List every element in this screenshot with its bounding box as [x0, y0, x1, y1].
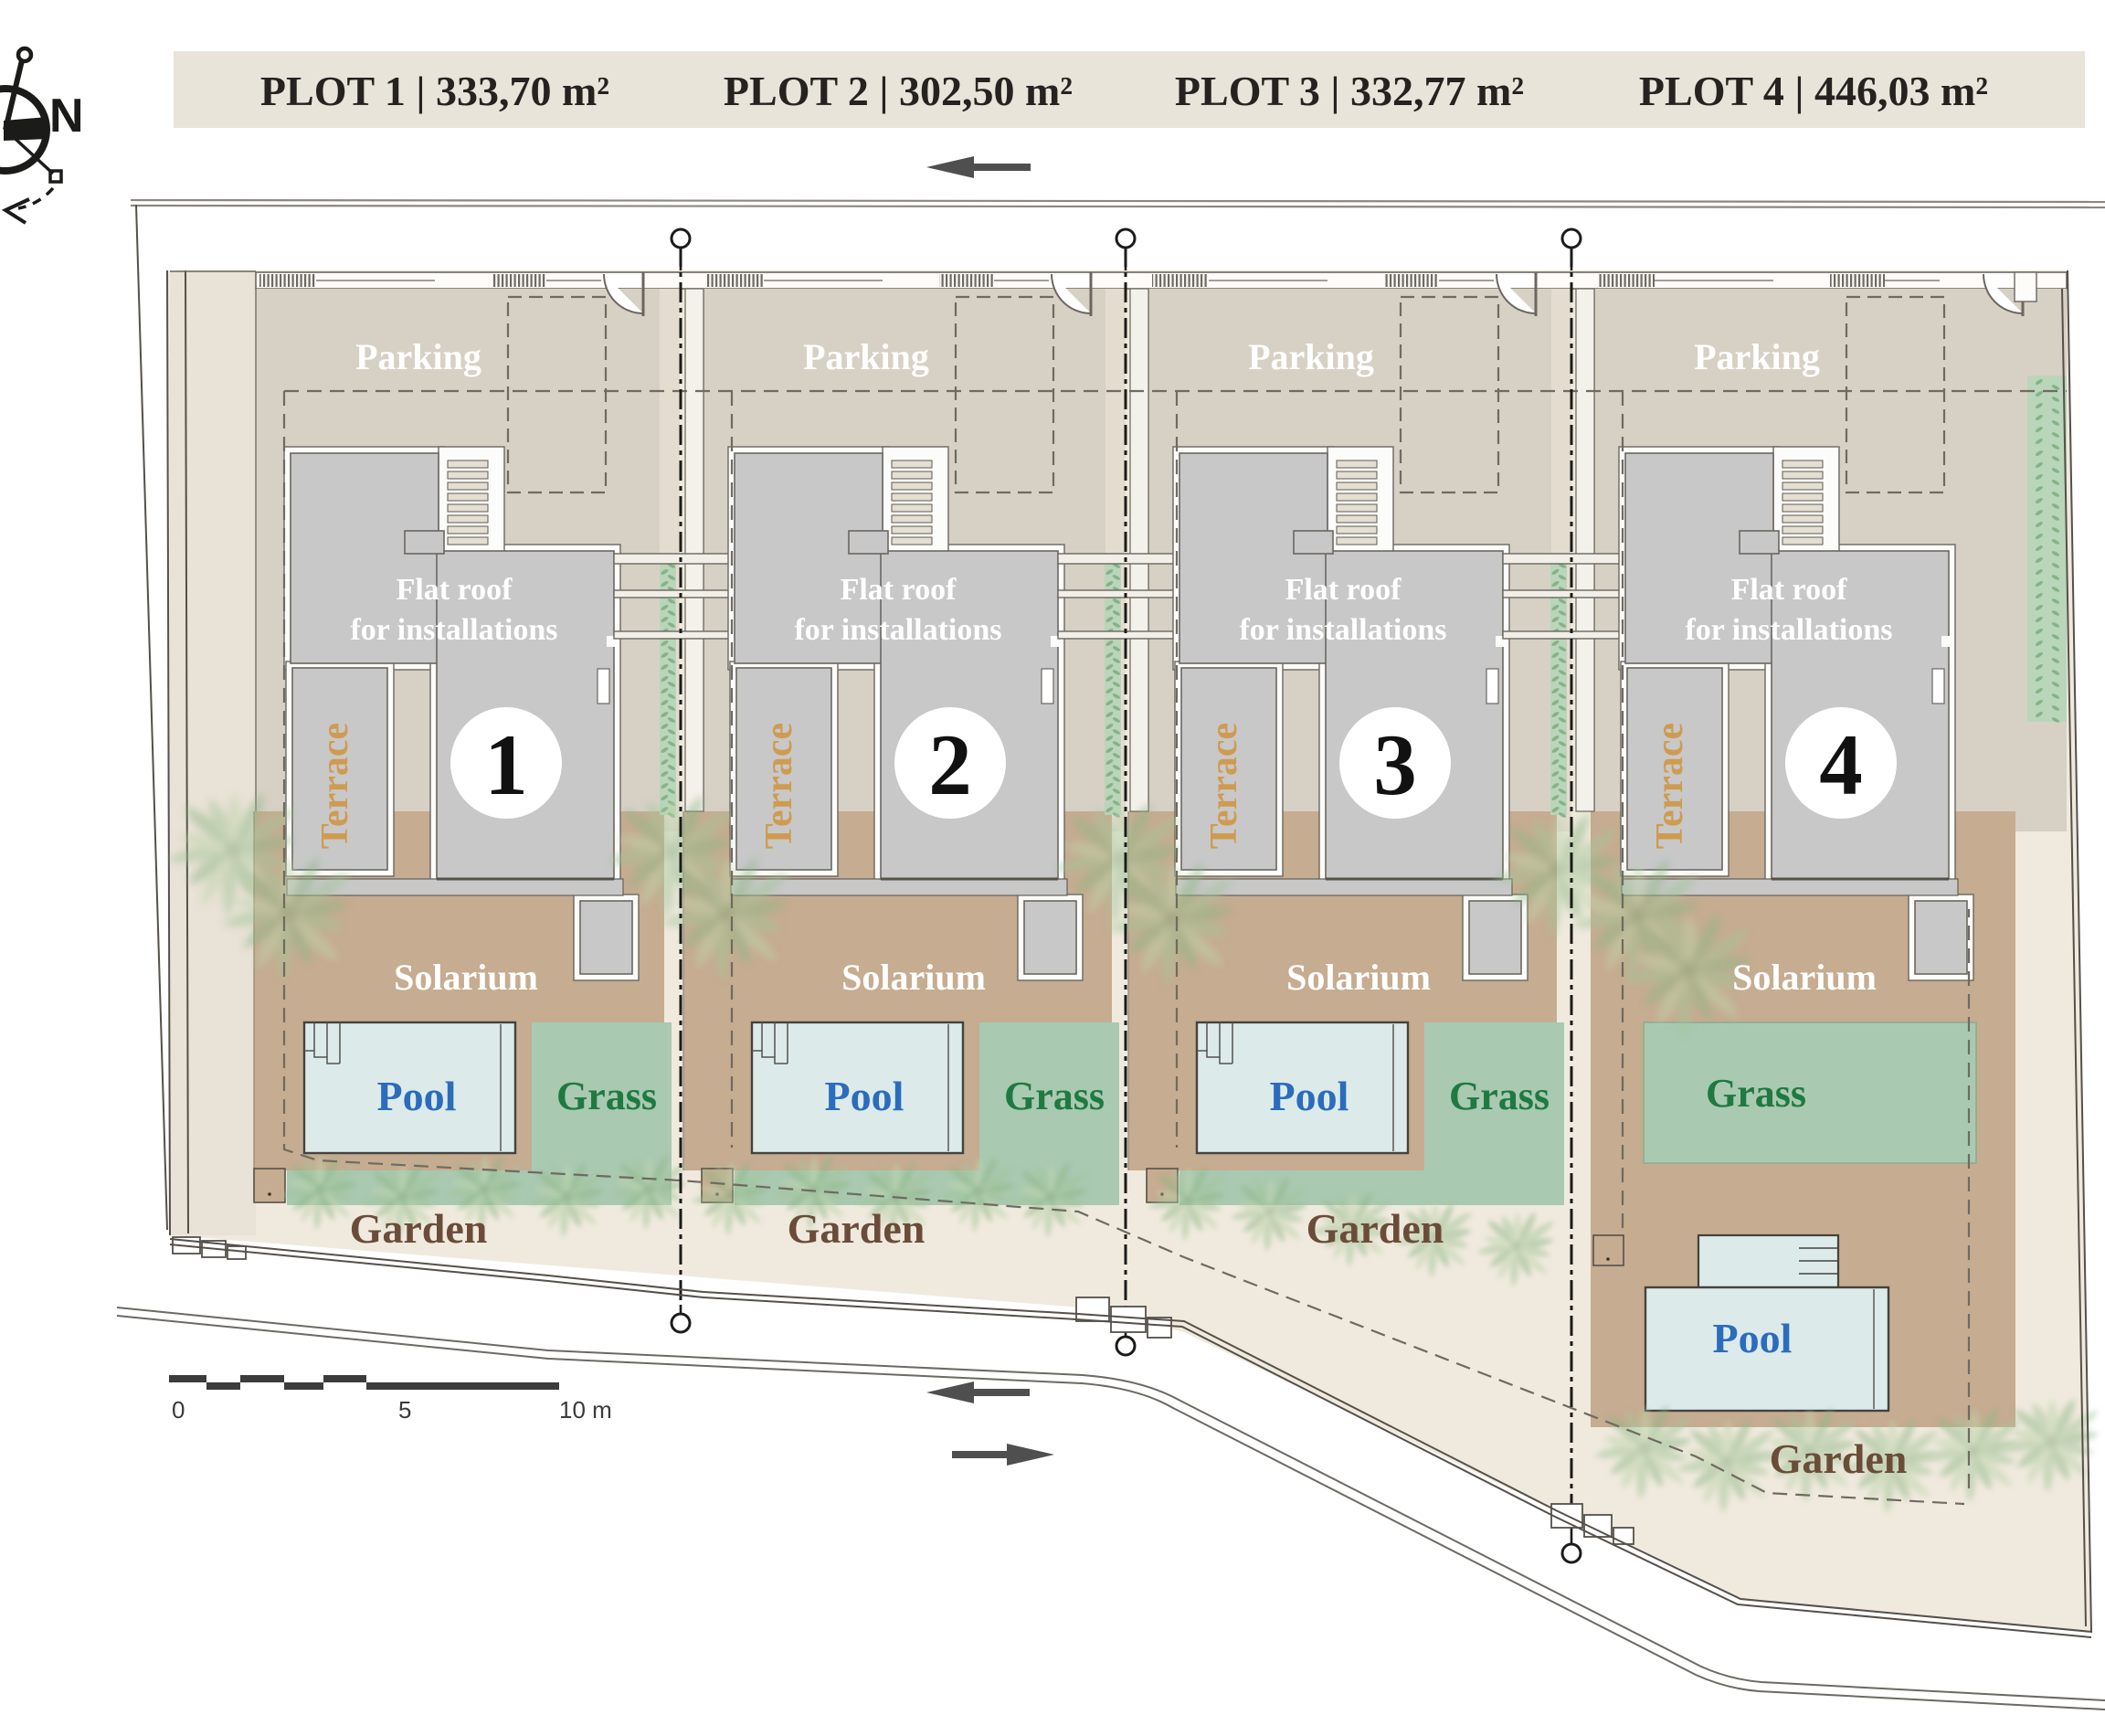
- svg-text:Pool: Pool: [1713, 1315, 1793, 1361]
- svg-text:for installations: for installations: [350, 613, 557, 647]
- svg-text:PLOT 3 | 332,77 m²: PLOT 3 | 332,77 m²: [1175, 68, 1524, 114]
- svg-text:Terrace: Terrace: [1649, 723, 1691, 849]
- svg-text:PLOT 4 | 446,03 m²: PLOT 4 | 446,03 m²: [1639, 68, 1988, 114]
- svg-text:Grass: Grass: [1449, 1074, 1550, 1118]
- svg-text:Flat roof: Flat roof: [397, 573, 513, 607]
- svg-text:Garden: Garden: [1770, 1435, 1908, 1482]
- svg-text:10 m: 10 m: [559, 1396, 612, 1424]
- svg-text:4: 4: [1819, 716, 1863, 813]
- svg-text:Pool: Pool: [1270, 1073, 1349, 1119]
- svg-text:PLOT 2 | 302,50 m²: PLOT 2 | 302,50 m²: [724, 68, 1073, 114]
- svg-text:Garden: Garden: [1306, 1205, 1444, 1252]
- svg-text:5: 5: [398, 1396, 411, 1424]
- svg-text:Parking: Parking: [1694, 336, 1820, 377]
- svg-text:Grass: Grass: [556, 1074, 657, 1118]
- svg-text:Garden: Garden: [788, 1205, 926, 1252]
- svg-text:Garden: Garden: [350, 1205, 488, 1252]
- svg-text:for installations: for installations: [1239, 613, 1446, 647]
- svg-text:Pool: Pool: [377, 1073, 457, 1119]
- svg-text:Parking: Parking: [355, 336, 481, 377]
- svg-text:Solarium: Solarium: [1286, 957, 1431, 998]
- svg-text:Grass: Grass: [1706, 1071, 1806, 1116]
- svg-text:Flat roof: Flat roof: [1731, 573, 1848, 607]
- svg-text:3: 3: [1373, 716, 1417, 813]
- svg-text:Terrace: Terrace: [758, 723, 800, 849]
- svg-text:0: 0: [172, 1396, 185, 1424]
- svg-text:Pool: Pool: [825, 1073, 904, 1119]
- svg-text:Parking: Parking: [1248, 336, 1374, 377]
- svg-text:Flat roof: Flat roof: [1285, 573, 1402, 607]
- svg-text:Terrace: Terrace: [1203, 723, 1245, 849]
- svg-text:for installations: for installations: [1685, 613, 1892, 647]
- svg-text:Solarium: Solarium: [394, 957, 538, 998]
- svg-text:Terrace: Terrace: [314, 723, 356, 849]
- svg-text:N: N: [49, 90, 84, 143]
- svg-text:1: 1: [484, 716, 528, 813]
- svg-text:Solarium: Solarium: [841, 957, 986, 998]
- svg-text:Solarium: Solarium: [1732, 957, 1877, 998]
- svg-text:Parking: Parking: [803, 336, 929, 377]
- svg-text:2: 2: [928, 716, 972, 813]
- svg-text:Grass: Grass: [1004, 1074, 1105, 1118]
- svg-text:PLOT 1 | 333,70 m²: PLOT 1 | 333,70 m²: [260, 68, 609, 114]
- svg-text:Flat roof: Flat roof: [841, 573, 957, 607]
- svg-text:for installations: for installations: [794, 613, 1001, 647]
